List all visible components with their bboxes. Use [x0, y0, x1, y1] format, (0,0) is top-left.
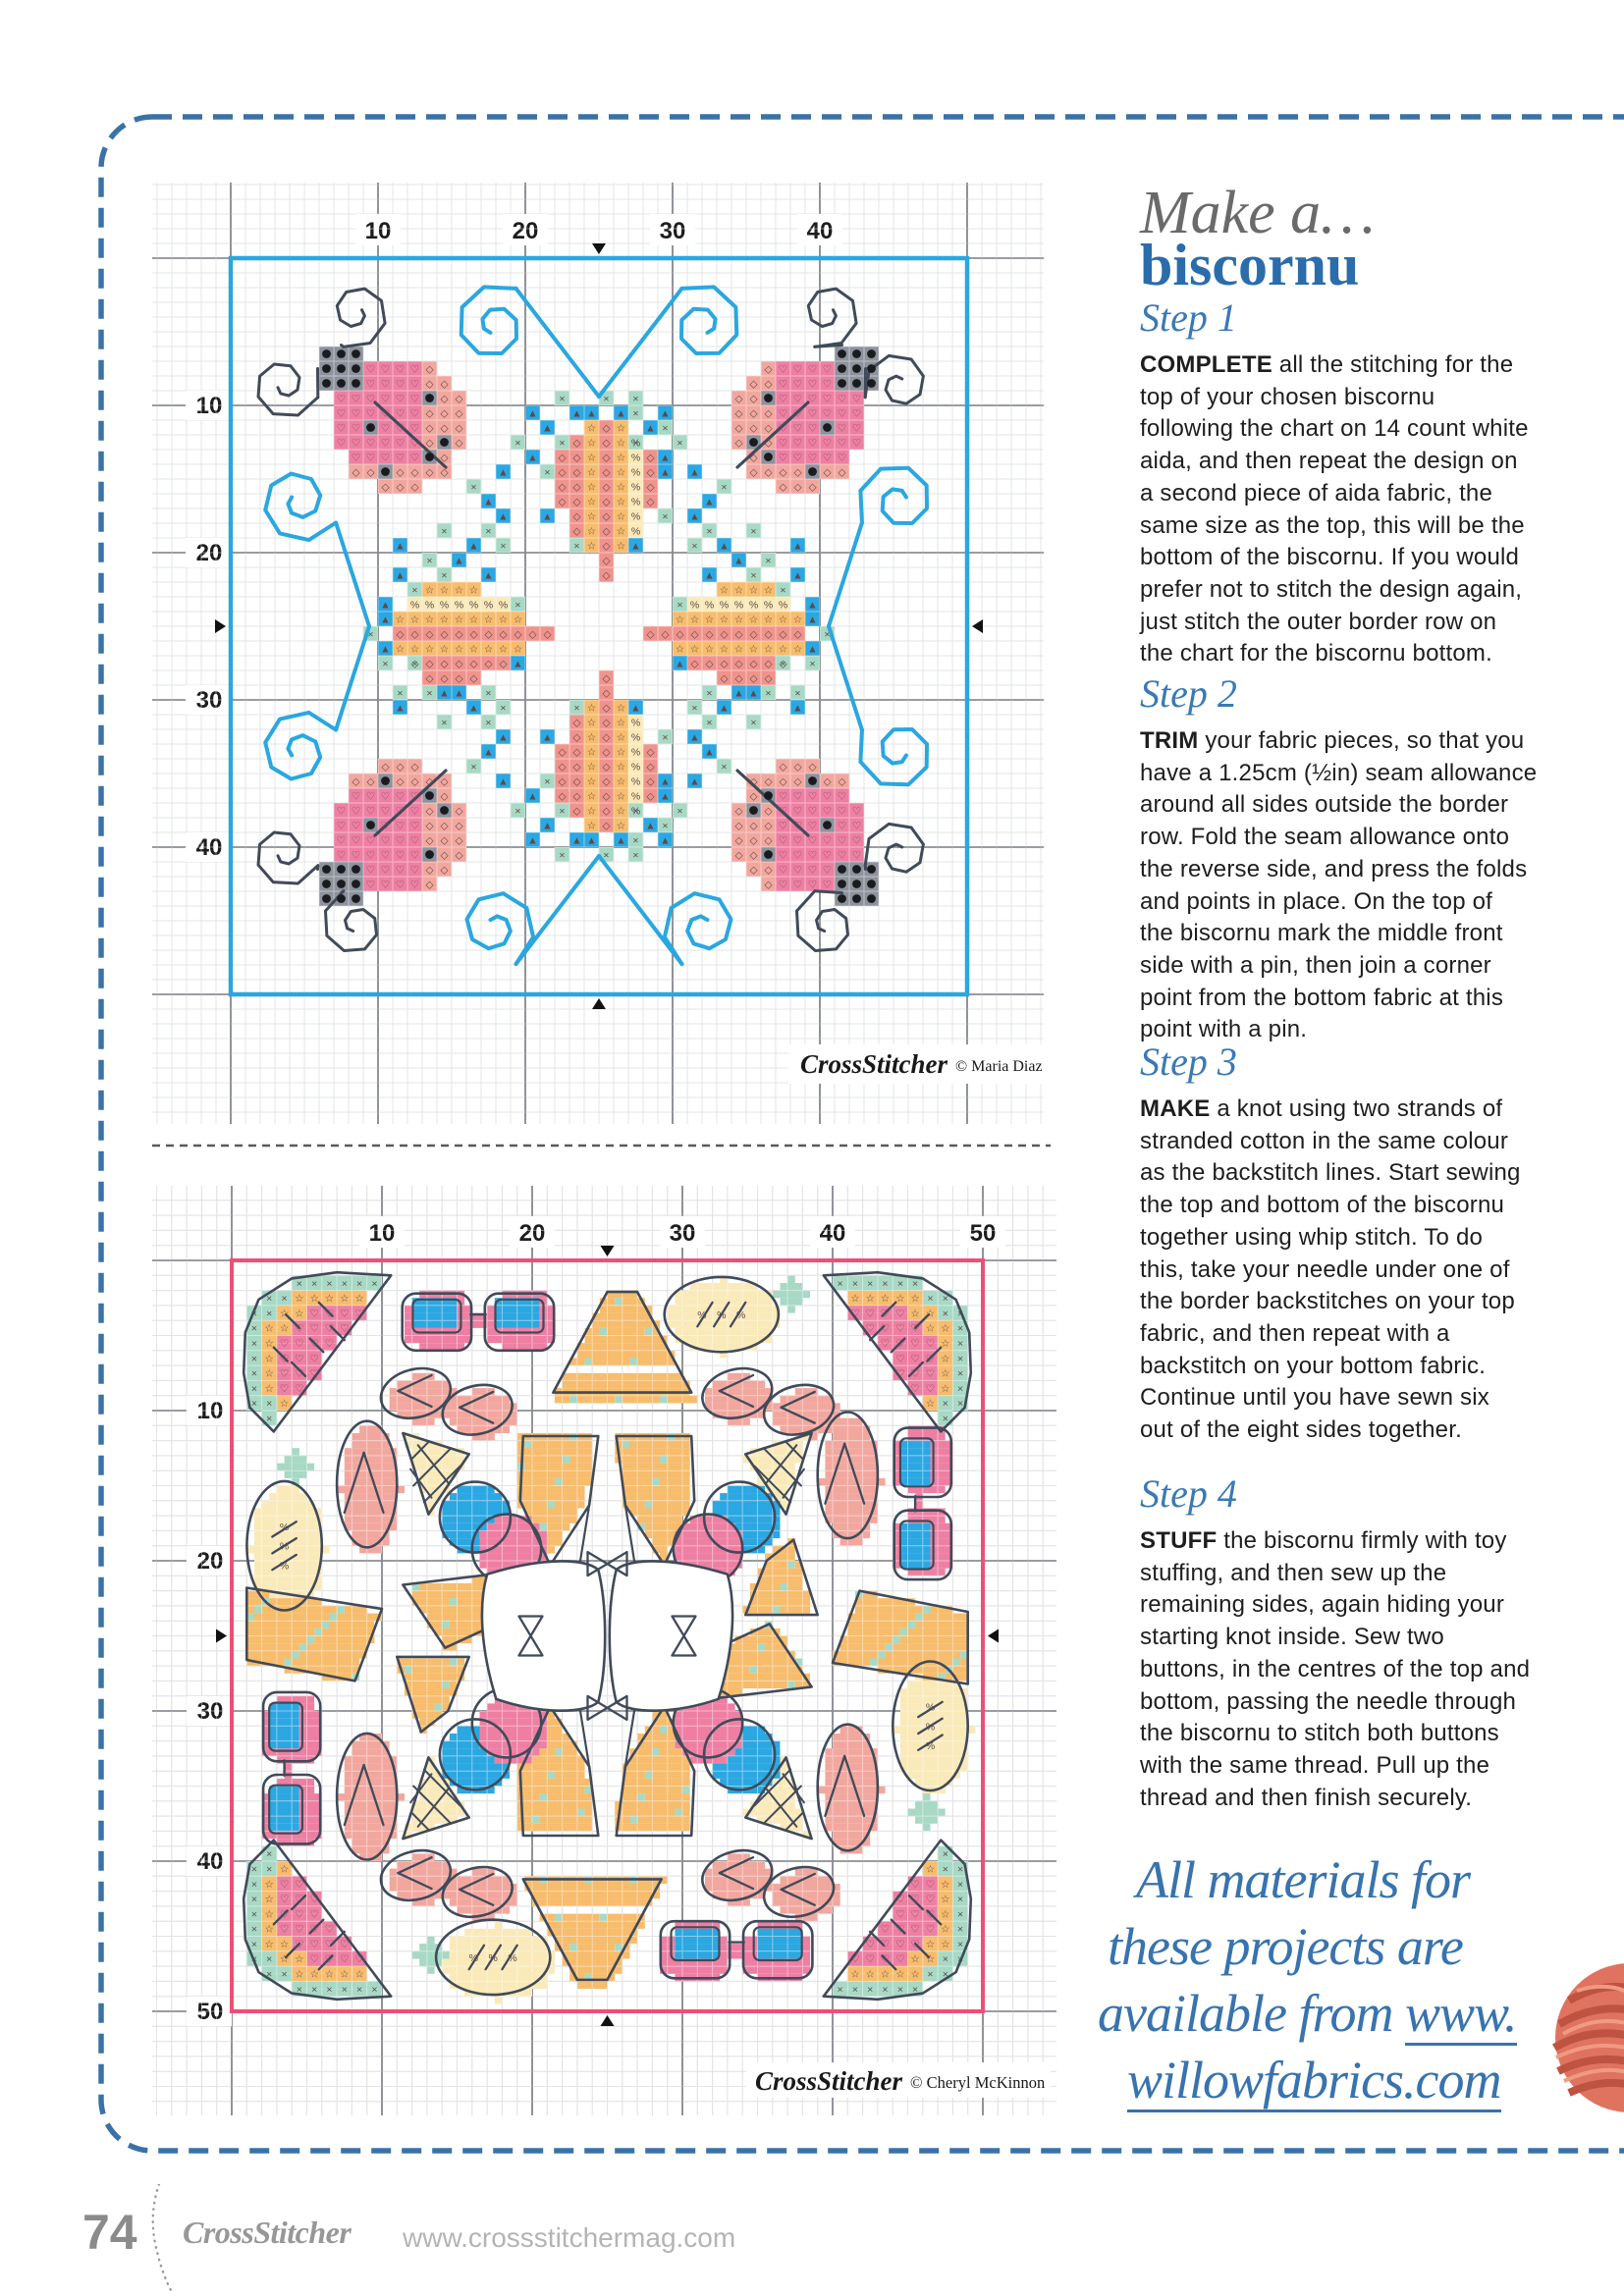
svg-text:◇: ◇ [572, 805, 581, 817]
svg-text:♡: ♡ [337, 407, 346, 419]
svg-text:%: % [484, 599, 493, 611]
svg-text:◇: ◇ [646, 466, 655, 478]
svg-text:◇: ◇ [425, 628, 434, 640]
svg-text:☆: ☆ [617, 746, 626, 758]
svg-text:♡: ♡ [352, 805, 360, 817]
svg-text:×: × [441, 717, 447, 728]
svg-text:×: × [943, 1848, 948, 1860]
svg-text:♡: ♡ [337, 849, 346, 861]
svg-text:♡: ♡ [337, 820, 346, 831]
svg-text:♡: ♡ [779, 864, 787, 876]
svg-text:×: × [927, 1969, 933, 1981]
svg-text:☆: ☆ [484, 614, 494, 625]
svg-text:☆: ☆ [280, 1398, 290, 1410]
svg-text:☆: ☆ [340, 1293, 350, 1305]
svg-text:×: × [485, 687, 491, 699]
svg-text:×: × [470, 481, 476, 493]
svg-text:◇: ◇ [646, 481, 655, 493]
svg-text:×: × [382, 658, 388, 669]
svg-text:▲: ▲ [616, 834, 625, 846]
svg-text:◇: ◇ [572, 466, 581, 478]
svg-text:×: × [765, 555, 771, 566]
svg-text:×: × [251, 1323, 257, 1335]
svg-text:☆: ☆ [587, 820, 597, 831]
svg-text:◇: ◇ [602, 702, 611, 714]
svg-text:◇: ◇ [602, 672, 611, 684]
svg-text:▲: ▲ [586, 407, 596, 419]
svg-text:×: × [957, 1338, 963, 1350]
svg-text:▲: ▲ [660, 834, 670, 846]
svg-text:☆: ☆ [499, 614, 509, 625]
svg-text:☆: ☆ [705, 643, 715, 655]
svg-text:♡: ♡ [396, 849, 405, 861]
svg-text:×: × [943, 1953, 948, 1965]
svg-text:♡: ♡ [410, 422, 419, 434]
svg-text:◇: ◇ [690, 628, 699, 640]
svg-text:×: × [251, 1894, 257, 1905]
svg-text:☆: ☆ [264, 1939, 274, 1950]
svg-text:♡: ♡ [410, 820, 419, 831]
svg-text:▲: ▲ [439, 687, 449, 699]
svg-text:☆: ☆ [720, 614, 730, 625]
svg-text:◇: ◇ [366, 466, 375, 478]
svg-text:×: × [632, 437, 638, 449]
svg-text:%: % [734, 599, 743, 611]
svg-text:▲: ▲ [630, 702, 640, 714]
svg-text:▲: ▲ [586, 834, 596, 846]
svg-text:♡: ♡ [838, 393, 846, 404]
svg-text:♡: ♡ [779, 834, 787, 846]
svg-text:© Maria Diaz: © Maria Diaz [955, 1058, 1043, 1075]
svg-text:☆: ☆ [910, 1293, 920, 1305]
svg-text:▲: ▲ [542, 731, 552, 743]
svg-text:♡: ♡ [793, 452, 802, 463]
svg-text:☆: ☆ [793, 643, 803, 655]
svg-text:♡: ♡ [352, 393, 360, 404]
svg-text:♡: ♡ [793, 393, 802, 404]
svg-text:◇: ◇ [602, 466, 611, 478]
svg-text:◇: ◇ [749, 820, 758, 831]
svg-text:×: × [266, 1414, 272, 1425]
svg-text:×: × [573, 702, 579, 714]
svg-text:×: × [282, 1969, 288, 1981]
svg-text:▲: ▲ [719, 702, 729, 714]
svg-text:×: × [662, 422, 668, 434]
svg-text:♡: ♡ [808, 452, 817, 463]
svg-text:×: × [514, 437, 520, 449]
svg-text:◇: ◇ [425, 378, 434, 390]
svg-text:◇: ◇ [572, 746, 581, 758]
svg-text:◇: ◇ [764, 407, 773, 419]
svg-text:×: × [867, 1278, 873, 1290]
svg-text:×: × [882, 1984, 888, 1996]
svg-text:☆: ☆ [425, 584, 435, 596]
svg-text:♡: ♡ [366, 437, 375, 449]
svg-text:♡: ♡ [410, 378, 419, 390]
svg-text:♡: ♡ [295, 1908, 303, 1920]
svg-text:×: × [897, 1278, 903, 1290]
svg-text:▲: ▲ [380, 614, 390, 625]
svg-text:×: × [882, 1278, 888, 1290]
svg-text:◇: ◇ [558, 746, 567, 758]
svg-text:◇: ◇ [734, 672, 743, 684]
svg-text:◇: ◇ [764, 466, 773, 478]
svg-text:♡: ♡ [838, 790, 846, 802]
svg-text:◇: ◇ [440, 775, 449, 787]
svg-text:♡: ♡ [366, 790, 375, 802]
svg-text:♡: ♡ [352, 452, 360, 463]
svg-text:♡: ♡ [823, 864, 832, 876]
svg-text:◇: ◇ [558, 496, 567, 507]
svg-text:♡: ♡ [366, 378, 375, 390]
svg-text:▲: ▲ [513, 658, 522, 669]
svg-text:◇: ◇ [410, 761, 419, 773]
svg-text:◇: ◇ [764, 378, 773, 390]
svg-text:◇: ◇ [396, 775, 405, 787]
svg-text:▲: ▲ [660, 790, 670, 802]
svg-text:◇: ◇ [779, 628, 787, 640]
svg-text:◇: ◇ [410, 775, 419, 787]
svg-text:▲: ▲ [689, 466, 699, 478]
svg-text:☆: ☆ [926, 1398, 936, 1410]
svg-text:♡: ♡ [396, 864, 405, 876]
svg-text:♡: ♡ [381, 437, 390, 449]
svg-text:▲: ▲ [395, 569, 405, 581]
svg-text:◇: ◇ [602, 805, 611, 817]
svg-text:◇: ◇ [440, 672, 449, 684]
svg-text:▲: ▲ [660, 407, 670, 419]
svg-text:☆: ☆ [617, 790, 626, 802]
svg-text:♡: ♡ [823, 805, 832, 817]
svg-text:◇: ◇ [764, 820, 773, 831]
svg-text:♡: ♡ [366, 864, 375, 876]
svg-text:×: × [662, 510, 668, 522]
svg-text:☆: ☆ [587, 702, 597, 714]
svg-text:×: × [500, 540, 506, 552]
svg-text:▲: ▲ [748, 687, 758, 699]
svg-text:◇: ◇ [440, 658, 449, 669]
svg-text:♡: ♡ [926, 1338, 935, 1350]
svg-text:☆: ☆ [617, 820, 626, 831]
svg-text:♡: ♡ [410, 393, 419, 404]
svg-text:×: × [514, 805, 520, 817]
svg-text:×: × [411, 584, 417, 596]
svg-text:♡: ♡ [337, 393, 346, 404]
svg-text:◇: ◇ [499, 628, 508, 640]
svg-text:☆: ☆ [587, 746, 597, 758]
svg-text:%: % [499, 599, 508, 611]
svg-text:♡: ♡ [352, 407, 360, 419]
svg-text:%: % [690, 599, 699, 611]
svg-text:×: × [632, 849, 638, 861]
svg-text:×: × [943, 1398, 948, 1410]
svg-text:♡: ♡ [808, 363, 817, 375]
svg-text:♡: ♡ [779, 879, 787, 890]
svg-text:▲: ▲ [498, 775, 508, 787]
svg-text:☆: ☆ [865, 1293, 875, 1305]
svg-text:♡: ♡ [352, 437, 360, 449]
svg-text:▲: ▲ [498, 466, 508, 478]
svg-text:♡: ♡ [295, 1338, 303, 1350]
svg-text:◇: ◇ [455, 393, 463, 404]
svg-text:☆: ☆ [264, 1353, 274, 1364]
svg-text:☆: ☆ [587, 452, 597, 463]
svg-text:♡: ♡ [352, 834, 360, 846]
svg-text:◇: ◇ [558, 761, 567, 773]
svg-text:◇: ◇ [528, 628, 537, 640]
svg-text:☆: ☆ [295, 1293, 304, 1305]
svg-text:© Cheryl McKinnon: © Cheryl McKinnon [910, 2073, 1045, 2092]
svg-text:%: % [720, 599, 729, 611]
svg-text:☆: ☆ [926, 1863, 936, 1875]
svg-text:☆: ☆ [676, 643, 685, 655]
svg-text:☆: ☆ [764, 584, 774, 596]
svg-text:×: × [677, 805, 682, 817]
svg-text:♡: ♡ [852, 407, 861, 419]
svg-text:◇: ◇ [749, 849, 758, 861]
svg-text:♡: ♡ [779, 849, 787, 861]
svg-text:♡: ♡ [808, 849, 817, 861]
svg-text:%: % [779, 599, 787, 611]
svg-text:☆: ☆ [690, 643, 700, 655]
svg-text:◇: ◇ [793, 775, 802, 787]
svg-text:◇: ◇ [720, 672, 729, 684]
svg-text:☆: ☆ [720, 643, 730, 655]
svg-text:♡: ♡ [280, 1368, 289, 1380]
svg-text:◇: ◇ [558, 466, 567, 478]
svg-text:◇: ◇ [764, 864, 773, 876]
svg-text:☆: ☆ [455, 643, 464, 655]
svg-text:×: × [838, 1278, 843, 1290]
svg-text:%: % [631, 496, 640, 507]
svg-text:☆: ☆ [396, 614, 406, 625]
svg-text:◇: ◇ [764, 363, 773, 375]
svg-text:☆: ☆ [617, 540, 626, 552]
svg-text:×: × [632, 393, 638, 404]
svg-text:♡: ♡ [381, 378, 390, 390]
svg-text:☆: ☆ [941, 1323, 950, 1335]
svg-text:☆: ☆ [499, 643, 509, 655]
svg-text:♡: ♡ [838, 834, 846, 846]
svg-text:☆: ☆ [617, 805, 626, 817]
svg-text:▲: ▲ [571, 407, 581, 419]
svg-text:♡: ♡ [410, 864, 419, 876]
svg-text:◇: ◇ [646, 775, 655, 787]
svg-text:◇: ◇ [558, 775, 567, 787]
svg-text:◇: ◇ [705, 628, 714, 640]
svg-text:♡: ♡ [396, 452, 405, 463]
svg-text:×: × [326, 1984, 332, 1996]
svg-text:♡: ♡ [779, 378, 787, 390]
svg-text:×: × [426, 687, 432, 699]
svg-text:◇: ◇ [734, 820, 743, 831]
svg-text:◇: ◇ [808, 761, 817, 773]
svg-text:♡: ♡ [410, 849, 419, 861]
svg-text:◇: ◇ [838, 775, 846, 787]
svg-text:☆: ☆ [309, 1969, 319, 1981]
svg-text:♡: ♡ [352, 820, 360, 831]
svg-text:☆: ☆ [676, 614, 685, 625]
svg-text:♡: ♡ [823, 849, 832, 861]
svg-text:×: × [957, 1353, 963, 1364]
svg-text:♡: ♡ [910, 1924, 919, 1936]
svg-text:▲: ▲ [660, 466, 670, 478]
svg-text:▲: ▲ [792, 569, 802, 581]
svg-text:◇: ◇ [764, 672, 773, 684]
svg-text:▲: ▲ [660, 775, 670, 787]
svg-text:♡: ♡ [808, 820, 817, 831]
svg-text:◇: ◇ [425, 864, 434, 876]
svg-text:◇: ◇ [646, 628, 655, 640]
svg-text:◇: ◇ [455, 422, 463, 434]
svg-text:×: × [691, 540, 697, 552]
svg-text:☆: ☆ [587, 525, 597, 537]
svg-text:▲: ▲ [704, 496, 714, 507]
svg-text:×: × [912, 1278, 918, 1290]
svg-text:▲: ▲ [719, 540, 729, 552]
svg-text:◇: ◇ [410, 466, 419, 478]
svg-text:×: × [470, 761, 476, 773]
svg-text:☆: ☆ [280, 1939, 290, 1950]
svg-text:%: % [705, 599, 714, 611]
svg-text:×: × [957, 1323, 963, 1335]
svg-text:▲: ▲ [792, 540, 802, 552]
svg-text:☆: ☆ [617, 496, 626, 507]
svg-text:◇: ◇ [734, 834, 743, 846]
svg-text:☆: ☆ [514, 614, 523, 625]
svg-text:×: × [957, 1383, 963, 1395]
svg-text:◇: ◇ [764, 658, 773, 669]
svg-text:♡: ♡ [309, 1953, 318, 1965]
svg-text:◇: ◇ [602, 717, 611, 728]
svg-text:×: × [943, 1863, 948, 1875]
svg-text:☆: ☆ [749, 643, 759, 655]
svg-text:▲: ▲ [675, 658, 684, 669]
svg-text:♡: ♡ [808, 790, 817, 802]
svg-text:♡: ♡ [410, 407, 419, 419]
svg-text:◇: ◇ [572, 717, 581, 728]
svg-text:☆: ☆ [587, 790, 597, 802]
svg-text:▲: ▲ [807, 643, 817, 655]
svg-text:▲: ▲ [483, 496, 493, 507]
svg-text:◇: ◇ [455, 834, 463, 846]
svg-text:◇: ◇ [425, 422, 434, 434]
svg-text:☆: ☆ [440, 584, 450, 596]
svg-text:×: × [750, 525, 756, 537]
svg-text:%: % [749, 599, 758, 611]
svg-text:♡: ♡ [366, 805, 375, 817]
svg-text:%: % [631, 525, 640, 537]
svg-text:♡: ♡ [410, 805, 419, 817]
svg-text:◇: ◇ [602, 820, 611, 831]
svg-text:☆: ☆ [617, 761, 626, 773]
svg-text:♡: ♡ [808, 422, 817, 434]
svg-text:☆: ☆ [410, 643, 420, 655]
svg-text:◇: ◇ [484, 658, 493, 669]
svg-text:▲: ▲ [689, 731, 699, 743]
svg-text:×: × [927, 1293, 933, 1305]
svg-text:♡: ♡ [926, 1894, 935, 1905]
svg-text:◇: ◇ [646, 790, 655, 802]
svg-text:×: × [266, 1848, 272, 1860]
svg-text:☆: ☆ [941, 1368, 950, 1380]
svg-text:☆: ☆ [587, 805, 597, 817]
svg-text:♡: ♡ [410, 834, 419, 846]
svg-text:☆: ☆ [617, 481, 626, 493]
svg-text:☆: ☆ [587, 422, 597, 434]
svg-text:♡: ♡ [280, 1924, 289, 1936]
svg-text:◇: ◇ [396, 761, 405, 773]
svg-text:×: × [852, 1984, 858, 1996]
svg-text:♡: ♡ [337, 437, 346, 449]
svg-text:♡: ♡ [295, 1924, 303, 1936]
svg-text:×: × [544, 466, 550, 478]
svg-text:▲: ▲ [527, 407, 537, 419]
svg-text:☆: ☆ [850, 1969, 860, 1981]
svg-text:×: × [282, 1293, 288, 1305]
svg-text:♡: ♡ [396, 820, 405, 831]
svg-text:%: % [631, 717, 640, 728]
svg-text:♡: ♡ [823, 393, 832, 404]
svg-text:☆: ☆ [617, 702, 626, 714]
svg-text:☆: ☆ [865, 1969, 875, 1981]
svg-text:☆: ☆ [779, 643, 788, 655]
svg-text:☆: ☆ [749, 614, 759, 625]
svg-text:♡: ♡ [808, 864, 817, 876]
svg-text:♡: ♡ [793, 378, 802, 390]
svg-text:◇: ◇ [440, 834, 449, 846]
svg-text:♡: ♡ [779, 820, 787, 831]
svg-text:☆: ☆ [425, 643, 435, 655]
svg-text:▲: ▲ [527, 452, 537, 463]
svg-text:×: × [297, 1278, 302, 1290]
svg-text:♡: ♡ [396, 393, 405, 404]
svg-text:◇: ◇ [764, 422, 773, 434]
svg-text:♡: ♡ [381, 363, 390, 375]
svg-text:%: % [631, 790, 640, 802]
svg-text:♡: ♡ [309, 1323, 318, 1335]
svg-text:◇: ◇ [425, 672, 434, 684]
svg-text:◇: ◇ [793, 466, 802, 478]
svg-text:♡: ♡ [793, 849, 802, 861]
svg-text:×: × [691, 702, 697, 714]
svg-text:◇: ◇ [425, 805, 434, 817]
svg-text:☆: ☆ [354, 1293, 364, 1305]
svg-text:◇: ◇ [410, 628, 419, 640]
svg-text:☆: ☆ [941, 1353, 950, 1364]
svg-text:☆: ☆ [295, 1308, 304, 1319]
svg-text:◇: ◇ [705, 658, 714, 669]
svg-text:♡: ♡ [779, 437, 787, 449]
svg-text:×: × [485, 525, 491, 537]
svg-text:▲: ▲ [542, 422, 552, 434]
svg-text:☆: ☆ [587, 437, 597, 449]
svg-text:▲: ▲ [616, 407, 625, 419]
svg-text:×: × [838, 1984, 843, 1996]
svg-text:◇: ◇ [425, 820, 434, 831]
svg-text:▲: ▲ [645, 422, 655, 434]
svg-text:☆: ☆ [469, 584, 479, 596]
svg-text:▲: ▲ [380, 599, 390, 611]
svg-text:♡: ♡ [895, 1353, 904, 1364]
svg-text:♡: ♡ [865, 1953, 874, 1965]
svg-text:◇: ◇ [572, 510, 581, 522]
svg-text:♡: ♡ [926, 1383, 935, 1395]
svg-text:%: % [469, 599, 478, 611]
svg-text:◇: ◇ [734, 658, 743, 669]
svg-text:♡: ♡ [852, 849, 861, 861]
svg-text:◇: ◇ [646, 746, 655, 758]
